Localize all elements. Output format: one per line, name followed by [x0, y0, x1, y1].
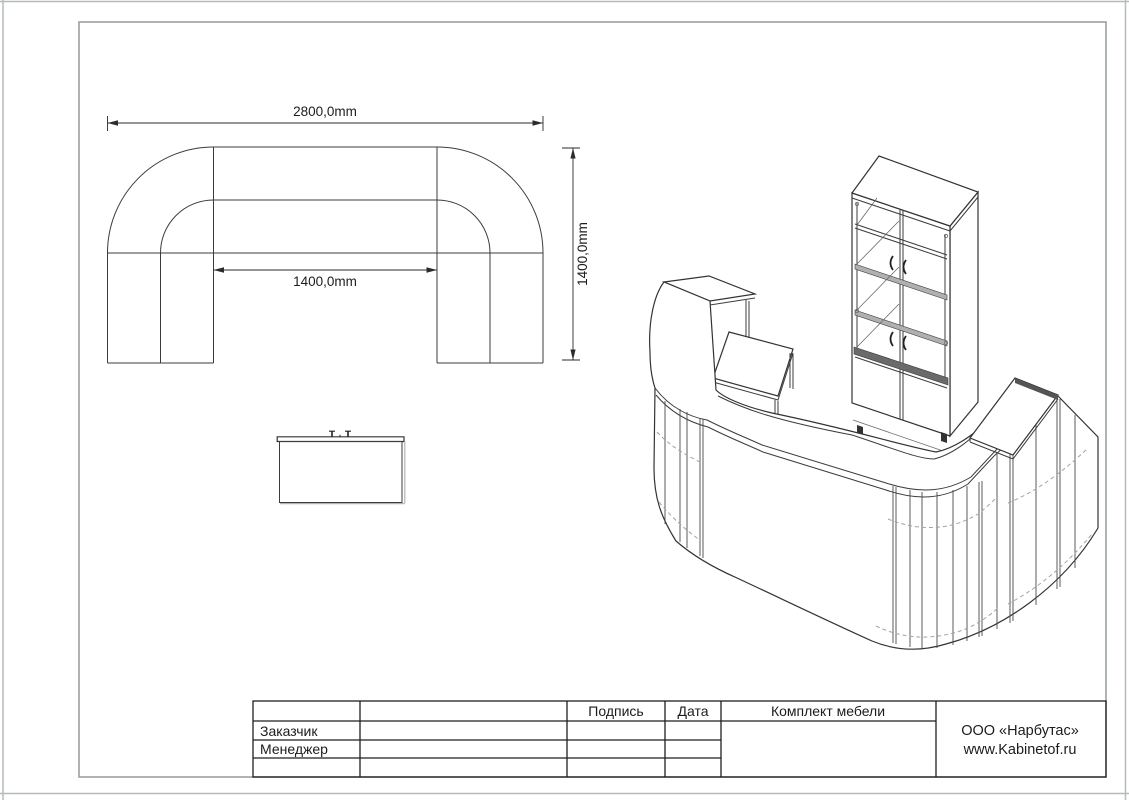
panel-clips	[329, 431, 351, 437]
drawing-sheet: 2800,0mm 1400,0mm 1400,0mm	[0, 0, 1129, 800]
titleblock-project-title: Комплект мебели	[771, 703, 885, 719]
titleblock-signature-header: Подпись	[588, 703, 643, 719]
dimension-overall-width: 2800,0mm	[108, 104, 544, 131]
titleblock-company-name: ООО «Нарбутас»	[961, 723, 1079, 739]
dimension-overall-depth: 1400,0mm	[562, 148, 590, 360]
titleblock-manager-label: Менеджер	[260, 741, 328, 757]
title-block: Подпись Дата Комплект мебели Заказчик Ме…	[253, 701, 1106, 777]
dimension-inner-width: 1400,0mm	[214, 267, 438, 289]
dim-overall-depth-label: 1400,0mm	[575, 222, 590, 286]
titleblock-customer-label: Заказчик	[260, 723, 318, 739]
dim-overall-width-label: 2800,0mm	[293, 104, 357, 119]
titleblock-date-header: Дата	[677, 703, 708, 719]
iso-view	[650, 156, 1098, 649]
plan-view: 2800,0mm 1400,0mm 1400,0mm	[108, 104, 591, 363]
plan-desk-outline	[108, 147, 544, 363]
cabinet	[852, 156, 978, 453]
titleblock-company-website: www.Kabinetof.ru	[963, 742, 1077, 758]
dim-inner-width-label: 1400,0mm	[293, 274, 357, 289]
panel-front-view	[277, 431, 405, 503]
drawing-canvas: 2800,0mm 1400,0mm 1400,0mm	[0, 0, 1129, 800]
